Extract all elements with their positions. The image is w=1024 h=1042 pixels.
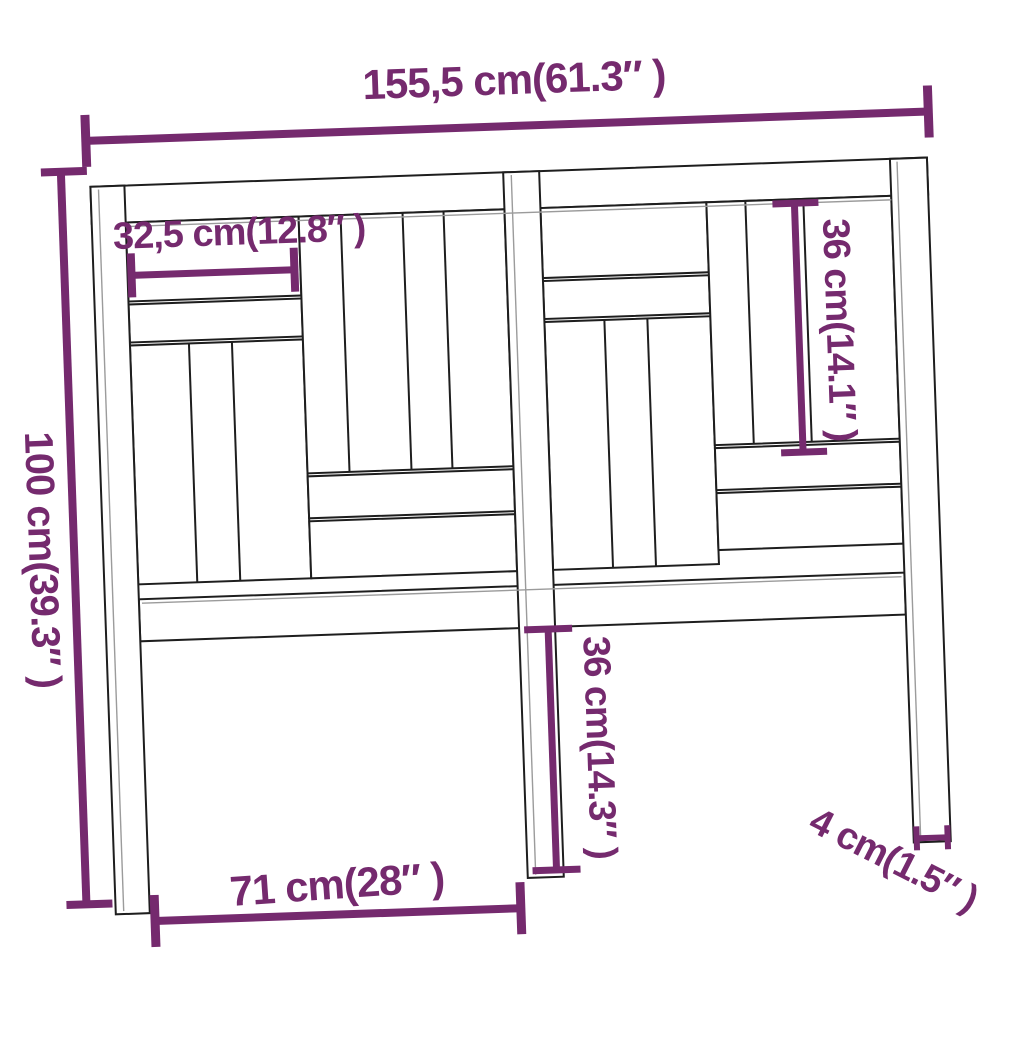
panel-3 (540, 202, 719, 570)
top-board-width-dimension-label: 32,5 cm(12.8″ ) (112, 209, 366, 256)
right-slat-height-dimension-label: 36 cm(14.1″ ) (816, 218, 862, 442)
center-leg-height-dimension-label: 36 cm(14.3″ ) (576, 635, 622, 859)
panel-4 (706, 196, 903, 550)
panel-2 (299, 209, 518, 578)
overall-height-dimension-label: 100 cm(39.3″ ) (18, 431, 67, 689)
overall-width-dimension-label: 155,5 cm(61.3″ ) (362, 54, 666, 107)
headboard-dimension-diagram: 155,5 cm(61.3″ ) 100 cm(39.3″ ) 32,5 cm(… (0, 0, 1024, 1042)
headboard-line-drawing (0, 0, 1024, 1042)
